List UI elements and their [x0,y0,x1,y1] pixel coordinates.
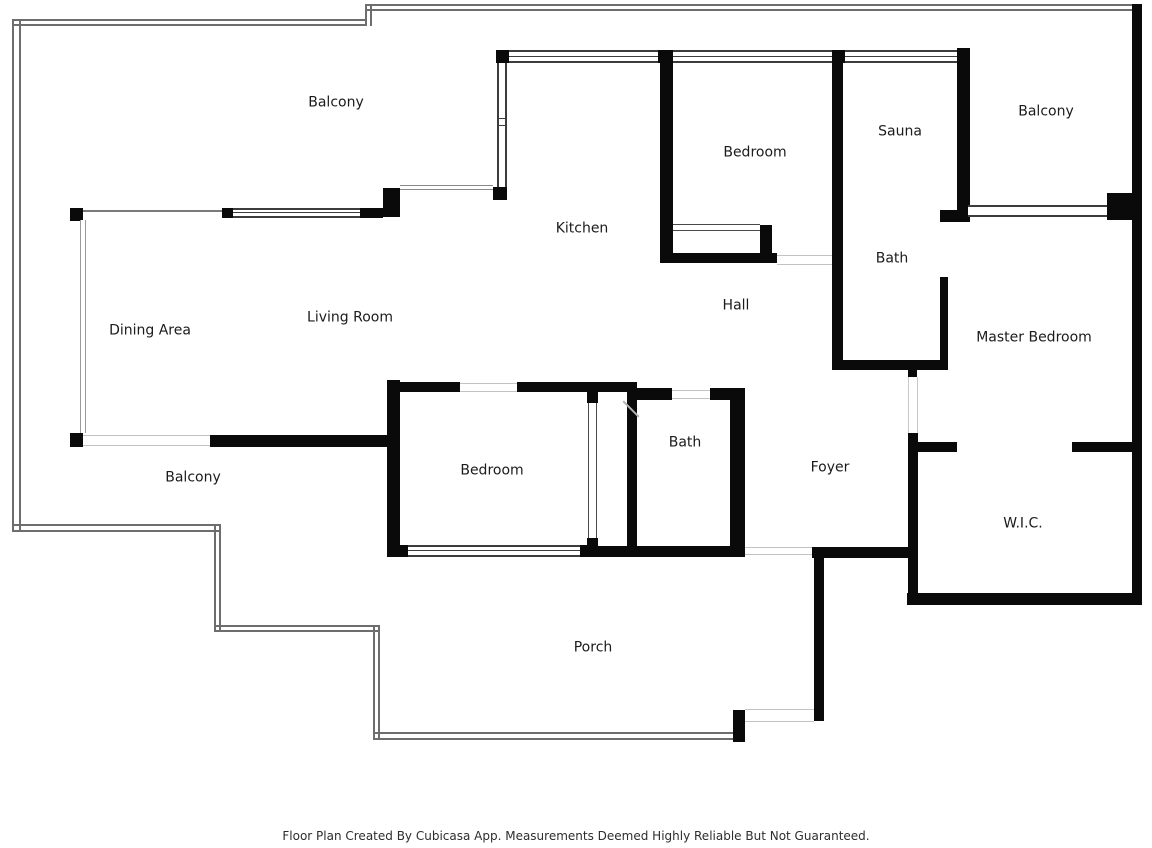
wall [832,63,843,370]
wall-stub [1072,442,1133,452]
boundary-top-left [12,19,365,26]
wall-post [658,50,673,63]
room-label-balcony-top-right: Balcony [1018,104,1074,121]
room-label-bedroom-top: Bedroom [723,145,786,162]
wall-stub [760,225,772,253]
window [673,50,832,63]
wall [832,360,948,370]
boundary-step-1 [214,524,221,632]
wall [908,433,918,603]
wall-stub [913,442,957,452]
wall-post [496,50,509,63]
wall-opening [460,383,517,392]
master-door-opening [908,377,918,433]
wall-stub [733,710,745,742]
wall-post [493,187,507,200]
wall [517,382,635,392]
room-label-living-room: Living Room [307,310,393,327]
boundary-top-right [365,4,1132,11]
window-end [222,208,233,218]
wall [635,388,672,400]
room-label-balcony-bottom: Balcony [165,470,221,487]
room-label-bedroom-middle: Bedroom [460,463,523,480]
footer-disclaimer: Floor Plan Created By Cubicasa App. Meas… [0,829,1152,843]
sliding-door [588,403,597,538]
wall [907,593,1142,605]
room-label-bath-lower: Bath [669,435,702,452]
room-label-foyer: Foyer [811,460,850,477]
balcony-edge-line [400,185,493,190]
boundary-bottom-2 [214,625,380,632]
wall [660,253,777,263]
room-label-sauna: Sauna [878,124,922,141]
room-label-wic: W.I.C. [1003,516,1043,533]
porch-door-opening [745,709,814,722]
window-end [360,208,383,218]
wall [812,547,910,558]
boundary-step-2 [373,625,380,740]
bedroom-door-opening [777,255,832,265]
wall-post [70,433,83,447]
wall [730,388,745,546]
window [408,545,580,557]
wall [387,380,400,557]
room-label-bath-upper: Bath [876,251,909,268]
room-label-master-bedroom: Master Bedroom [976,330,1092,347]
room-label-porch: Porch [574,640,613,657]
boundary-bottom-3 [373,732,733,740]
window [845,50,957,63]
window-vertical [497,63,507,188]
glass-wall-line [83,210,222,212]
wall [814,557,824,721]
wall [958,52,970,213]
glass-wall-line [80,220,86,433]
window [509,50,658,63]
floor-plan: Balcony Kitchen Bedroom Sauna Balcony Ba… [0,0,1152,848]
wall [1132,4,1142,605]
wall-stub [908,367,917,377]
entry-door-opening [745,547,812,555]
balcony-door-opening [83,435,210,446]
room-label-dining-area: Dining Area [109,323,191,340]
bath-door-opening [672,390,710,399]
wall-corner [1107,193,1132,220]
room-label-kitchen: Kitchen [556,221,609,238]
wall [660,63,673,253]
boundary-left [12,19,21,532]
room-label-balcony-top-left: Balcony [308,95,364,112]
wall-post [832,50,845,63]
room-label-hall: Hall [723,298,750,315]
boundary-bottom-1 [12,524,220,532]
window [968,205,1107,217]
wall-stub [587,385,598,403]
wall [580,545,597,557]
window [233,208,360,218]
closet-sliding-door [673,224,760,231]
wall-corner [383,188,400,217]
wall [940,277,948,370]
wall [597,546,745,557]
wall [387,545,408,557]
wall [210,435,400,447]
wall [387,382,460,392]
